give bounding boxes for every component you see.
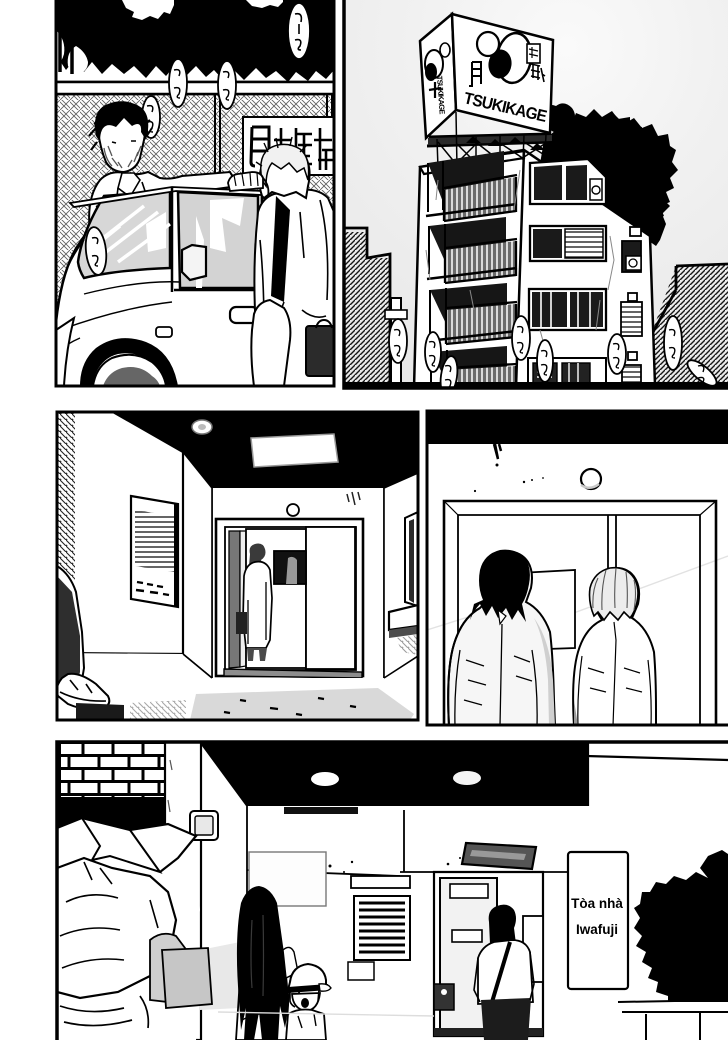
svg-text:Tòa nhà: Tòa nhà bbox=[571, 896, 623, 911]
svg-text:Iwafuji: Iwafuji bbox=[576, 922, 618, 937]
